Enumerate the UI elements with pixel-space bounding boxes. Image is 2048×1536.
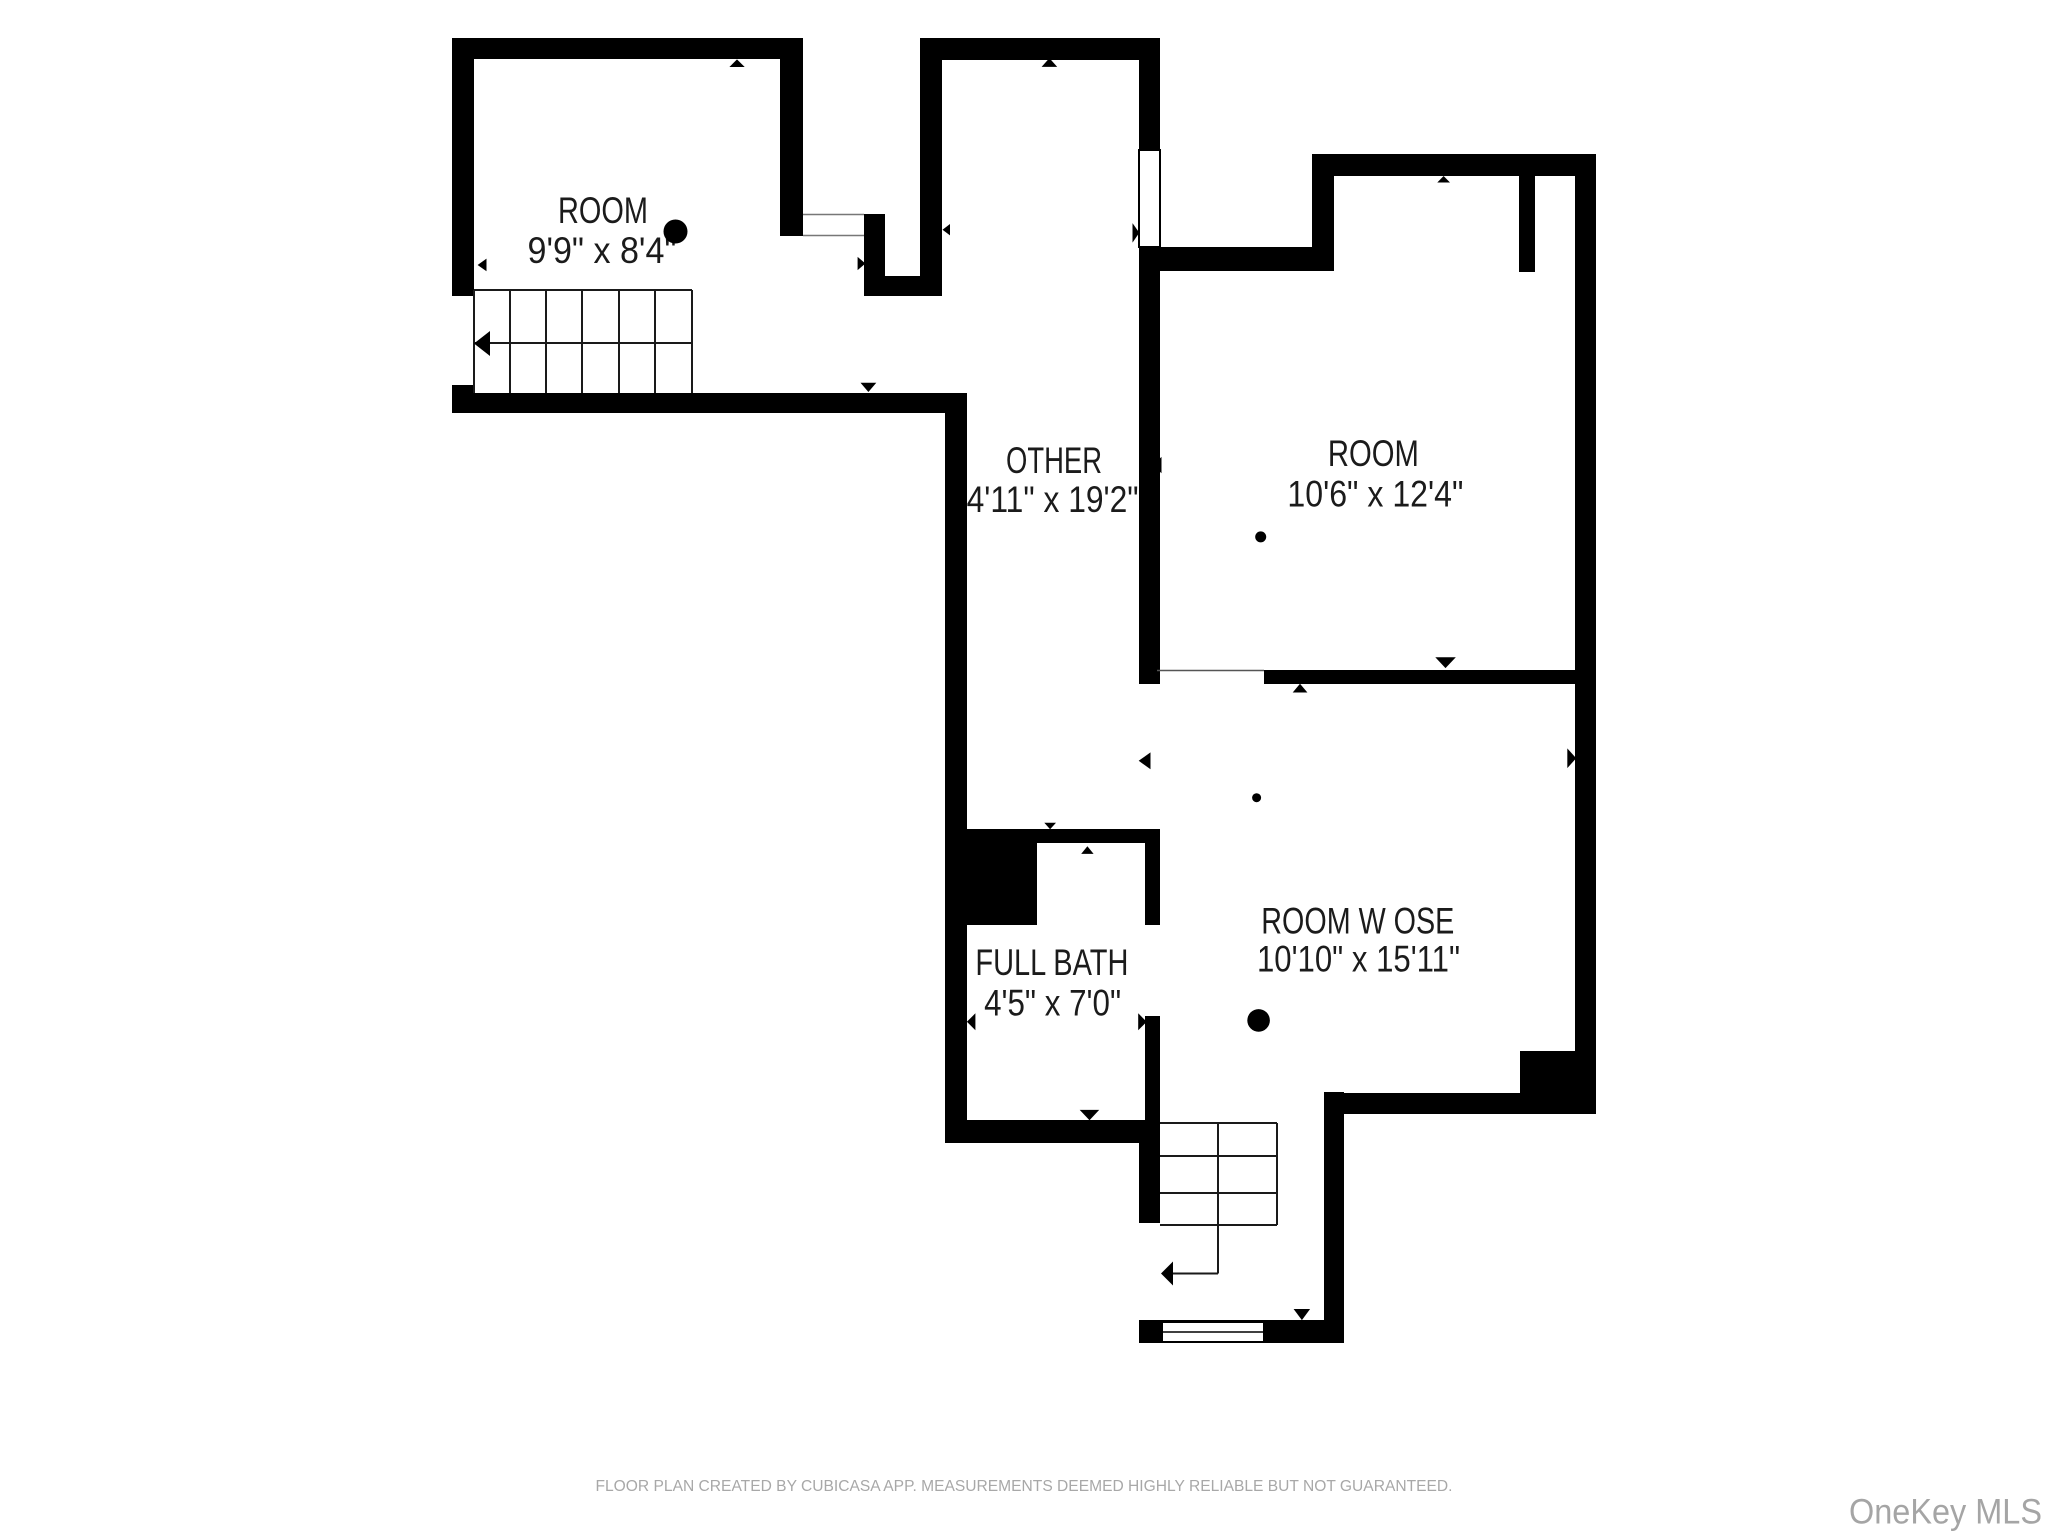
svg-text:10'10" x 15'11": 10'10" x 15'11" [1257, 939, 1460, 980]
svg-text:ROOM: ROOM [558, 190, 648, 231]
svg-text:OneKey MLS: OneKey MLS [1849, 1492, 2042, 1532]
svg-text:FULL BATH: FULL BATH [975, 942, 1128, 983]
svg-text:FLOOR PLAN CREATED BY CUBICASA: FLOOR PLAN CREATED BY CUBICASA APP. MEAS… [596, 1478, 1453, 1495]
svg-text:10'6" x 12'4": 10'6" x 12'4" [1287, 474, 1463, 515]
svg-text:ROOM: ROOM [1328, 433, 1419, 474]
svg-text:4'5" x 7'0": 4'5" x 7'0" [984, 983, 1121, 1024]
svg-text:4'11" x 19'2": 4'11" x 19'2" [967, 479, 1139, 520]
svg-text:ROOM W OSE: ROOM W OSE [1261, 901, 1454, 942]
svg-text:OTHER: OTHER [1006, 440, 1102, 481]
svg-text:9'9" x 8'4": 9'9" x 8'4" [528, 230, 677, 271]
